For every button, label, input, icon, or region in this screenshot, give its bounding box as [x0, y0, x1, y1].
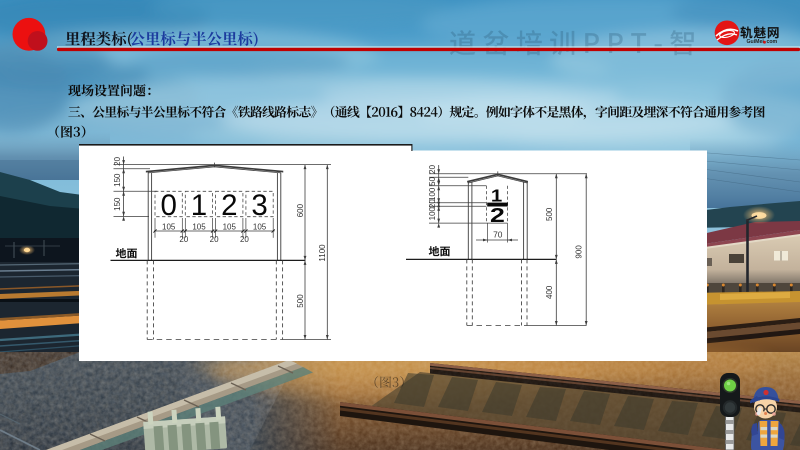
svg-text:20: 20	[240, 235, 249, 244]
svg-text:20: 20	[210, 235, 219, 244]
svg-text:105: 105	[223, 222, 237, 231]
svg-text:105: 105	[253, 222, 267, 231]
svg-text:500: 500	[296, 294, 305, 308]
svg-text:150: 150	[113, 173, 122, 187]
svg-text:20: 20	[428, 164, 437, 173]
svg-text:0: 0	[160, 189, 176, 222]
svg-text:2: 2	[490, 204, 505, 227]
svg-text:20: 20	[428, 199, 437, 208]
svg-text:20: 20	[113, 156, 122, 165]
svg-text:3: 3	[251, 189, 267, 222]
svg-text:GuiMei: GuiMei	[747, 39, 765, 45]
svg-text:500: 500	[545, 207, 554, 221]
svg-text:900: 900	[575, 245, 584, 259]
svg-text:100: 100	[428, 206, 437, 220]
svg-text:1100: 1100	[318, 244, 327, 262]
svg-text:20: 20	[179, 235, 188, 244]
svg-text:2: 2	[221, 189, 237, 222]
svg-text:100: 100	[428, 187, 437, 201]
svg-text:105: 105	[162, 222, 176, 231]
svg-text:600: 600	[296, 203, 305, 217]
svg-text:70: 70	[493, 230, 503, 240]
svg-text:150: 150	[113, 197, 122, 211]
svg-text:50: 50	[428, 176, 437, 185]
svg-text:com: com	[767, 39, 778, 45]
svg-text:105: 105	[192, 222, 206, 231]
svg-text:1: 1	[191, 189, 207, 222]
svg-text:400: 400	[545, 285, 554, 299]
